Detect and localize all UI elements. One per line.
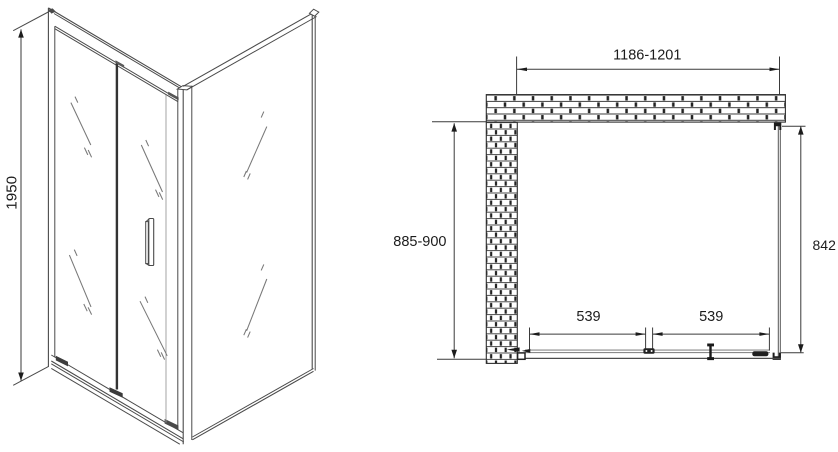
svg-text:539: 539 <box>576 309 600 325</box>
svg-text:539: 539 <box>699 309 723 325</box>
svg-text:885-900: 885-900 <box>393 234 446 250</box>
svg-text:842: 842 <box>813 237 837 253</box>
svg-text:1950: 1950 <box>4 176 21 210</box>
svg-text:1186-1201: 1186-1201 <box>613 48 681 64</box>
